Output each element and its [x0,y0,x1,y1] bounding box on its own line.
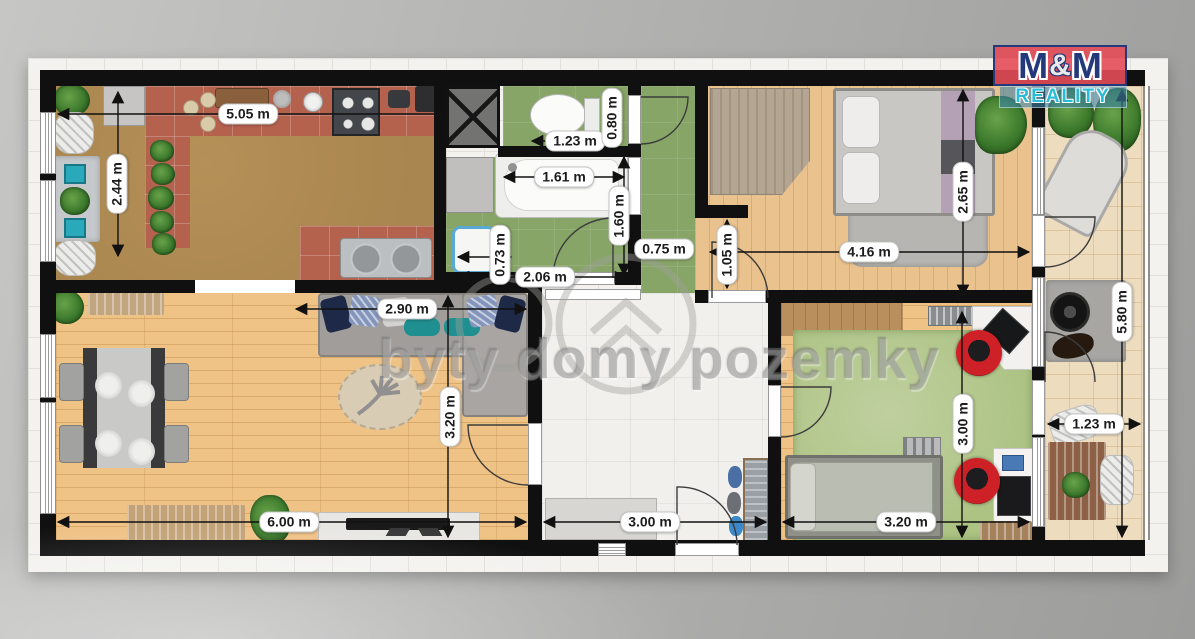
balcony-railing [1143,86,1150,540]
balcony-door-kids [1032,380,1045,435]
bedroom-door-opening [708,290,766,303]
plate [95,372,122,399]
dim-kitchen-depth: 2.44 m [107,154,128,214]
dim-corridor-width: 0.75 m [634,239,694,260]
wall-living-hall [528,293,542,540]
bed-pillow [842,96,880,148]
gaming-chair [954,458,1000,504]
toilet-tank [584,98,600,132]
tv-foot [418,528,443,536]
dim-hall-width: 3.00 m [620,512,680,533]
dining-chair [59,425,84,463]
kids-bottom-shelf [980,521,1032,540]
breakfast-stool [183,100,199,116]
stove [332,88,380,136]
shoes [728,466,742,488]
window [40,112,56,174]
dim-bathroom-width: 2.06 m [515,267,575,288]
potted-plant-row [152,233,176,255]
dim-living-width: 6.00 m [259,512,319,533]
agency-logo-subtitle: REALITY [999,86,1127,108]
shoes [727,492,741,514]
dim-balcony-width: 1.23 m [1064,414,1124,435]
dim-bedroom-width: 4.16 m [839,242,899,263]
wc-door-opening [628,95,641,144]
kids-door-opening [768,385,781,437]
dim-kids-width: 3.20 m [876,512,936,533]
dim-sofa-width: 2.90 m [377,299,437,320]
rug-feather-motif [352,372,408,420]
wicker-chair [54,112,94,154]
bathtub-faucet [508,163,517,172]
dim-living-depth: 3.20 m [440,387,461,447]
sideboard [88,293,164,315]
wall-bedroom-stub [695,205,748,218]
corridor-floor [641,86,695,303]
shoe-rack [743,458,769,542]
teal-tray [64,218,86,238]
dim-bathtub-length: 1.61 m [534,167,594,188]
double-sink [340,238,432,278]
kids-pillow [790,463,816,531]
balcony-window [1032,127,1045,215]
wall-bedroom-left [695,86,708,218]
window [40,334,56,398]
dim-wc-width: 1.23 m [545,131,605,152]
shoes [729,516,743,536]
plant [1062,472,1090,498]
wicker-chair [54,240,96,276]
living-door-opening [528,423,542,485]
hall-corridor-threshold [545,289,641,300]
fire-pit [1050,292,1090,332]
washing-machine [446,157,494,213]
gaming-chair [956,330,1002,376]
plate [128,380,155,407]
teal-tray [64,164,86,184]
bathroom-side-door-opening [628,157,641,215]
plate [128,438,155,465]
potted-plant-row [151,163,175,185]
entry-door-opening [675,543,739,556]
sofa-cushion-teal [404,318,440,336]
monitor [997,476,1031,516]
wardrobe [710,88,810,195]
plant [60,187,90,215]
logo-letter-m: M [1072,48,1102,84]
balcony-window [1032,277,1045,367]
kitchen-living-opening [195,280,295,293]
agency-logo: M & M REALITY [993,45,1127,108]
balcony-chair [1100,455,1134,505]
dim-basin-width: 0.73 m [490,225,511,285]
window [40,402,56,514]
wall-top [40,70,1145,86]
logo-letter-m: M [1018,48,1048,84]
dining-chair [164,425,189,463]
balcony-door-bedroom [1032,215,1045,267]
dim-bedroom-depth: 2.65 m [953,162,974,222]
wall-kitchen-bath [434,86,446,285]
dim-balcony-length: 5.80 m [1112,282,1133,342]
fridge [103,86,145,126]
bed-pillow [842,152,880,204]
coffee-maker [388,90,410,108]
wall-bottom [40,540,1145,556]
breakfast-stool [200,92,216,108]
laptop-blue [1002,455,1024,471]
balcony-window [1032,437,1045,527]
dining-chair [164,363,189,401]
kettle [303,92,323,112]
dining-chair [59,363,84,401]
sideboard [127,505,245,541]
potted-plant-row [148,186,174,210]
dim-bathtub-width: 1.60 m [609,186,630,246]
shaft [446,86,500,148]
dim-kids-depth: 3.00 m [953,394,974,454]
agency-logo-mark: M & M [993,45,1127,86]
potted-plant-row [150,140,174,162]
window [40,180,56,262]
logo-ampersand: & [1049,51,1071,81]
potted-plant-row [150,211,174,233]
dim-bedroom-entry: 1.05 m [717,225,738,285]
dim-kitchen-width: 5.05 m [218,104,278,125]
entry-sidelight [598,543,626,556]
dim-wc-depth: 0.80 m [602,88,623,148]
breakfast-stool [200,116,216,132]
plate [95,430,122,457]
floor-plan: byty domy pozemky [0,0,1195,639]
